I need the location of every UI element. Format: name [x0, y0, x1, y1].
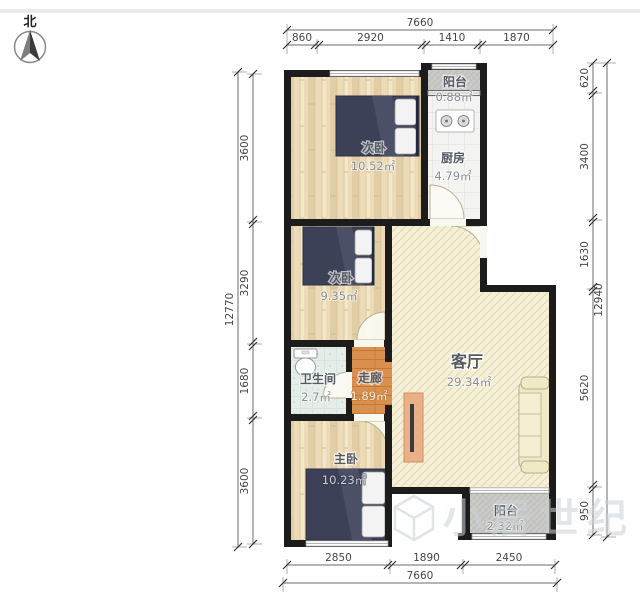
wall-living-step [480, 285, 556, 292]
dim-label: 12770 [224, 293, 236, 326]
bathroom-name: 卫生间 [300, 371, 336, 386]
window-bedroom-top [330, 71, 419, 76]
dim-label: 3400 [579, 143, 591, 170]
top-divider [0, 9, 640, 13]
dim-label: 12940 [593, 283, 605, 316]
bedroom-master-door-opening [354, 414, 384, 421]
bedroom-master-name: 主卧 [334, 451, 358, 466]
dim-label: 1630 [579, 241, 591, 268]
bedroom-mid-door-opening [354, 340, 384, 347]
kitchen-door-opening [430, 219, 466, 226]
dim-label: 3600 [239, 468, 251, 495]
wall-left [284, 70, 291, 547]
floor-plan: 次卧 10.52㎡ 阳台 0.88㎡ 厨房 4.79㎡ 次卧 9.35㎡ 卫生间… [0, 0, 640, 601]
balcony-top-name: 阳台 [443, 74, 467, 89]
sliding-door-living-balcony [470, 488, 549, 493]
sofa-icon [519, 377, 552, 473]
bedroom-mid-name: 次卧 [329, 270, 353, 285]
stove-icon [436, 110, 474, 132]
bedroom-top-area: 10.52㎡ [351, 159, 396, 173]
dim-label: 2450 [496, 552, 523, 564]
living-area: 29.34㎡ [447, 375, 492, 389]
kitchen-name: 厨房 [441, 150, 465, 165]
dim-label: 620 [579, 68, 591, 88]
corridor-area: 1.89㎡ [350, 389, 388, 403]
dim-label: 860 [292, 32, 312, 44]
watermark-text: 小居世纪 [443, 496, 635, 542]
balcony-top-area: 0.88㎡ [435, 90, 473, 104]
corridor-name: 走廊 [358, 370, 382, 385]
dim-label: 1410 [439, 32, 466, 44]
dim-label: 1890 [413, 552, 440, 564]
floor-plan-page: 次卧 10.52㎡ 阳台 0.88㎡ 厨房 4.79㎡ 次卧 9.35㎡ 卫生间… [0, 0, 640, 601]
dim-label: 2920 [357, 32, 384, 44]
bedroom-master-area: 10.23㎡ [322, 473, 367, 487]
dim-label: 7660 [407, 570, 434, 582]
dim-label: 3600 [239, 135, 251, 162]
dim-label: 1680 [239, 368, 251, 395]
wall-living-bottom [385, 487, 470, 494]
bathroom-area: 2.7㎡ [301, 390, 331, 404]
wall-kitchen-left [421, 63, 428, 226]
entry-door-opening [480, 226, 487, 258]
dim-label: 5620 [579, 375, 591, 402]
window-balcony-top [432, 64, 476, 69]
dim-label: 2850 [325, 552, 352, 564]
bedroom-mid-area: 9.35㎡ [320, 289, 358, 303]
dim-label: 1870 [503, 32, 530, 44]
window-master-bottom [306, 541, 388, 546]
tv-stand-icon [404, 393, 423, 462]
bedroom-top-name: 次卧 [362, 140, 386, 155]
dim-label: 7660 [407, 17, 434, 29]
north-label: 北 [23, 15, 36, 30]
living-name: 客厅 [451, 352, 483, 371]
kitchen-area: 4.79㎡ [434, 169, 472, 183]
dim-label: 3290 [239, 270, 251, 297]
